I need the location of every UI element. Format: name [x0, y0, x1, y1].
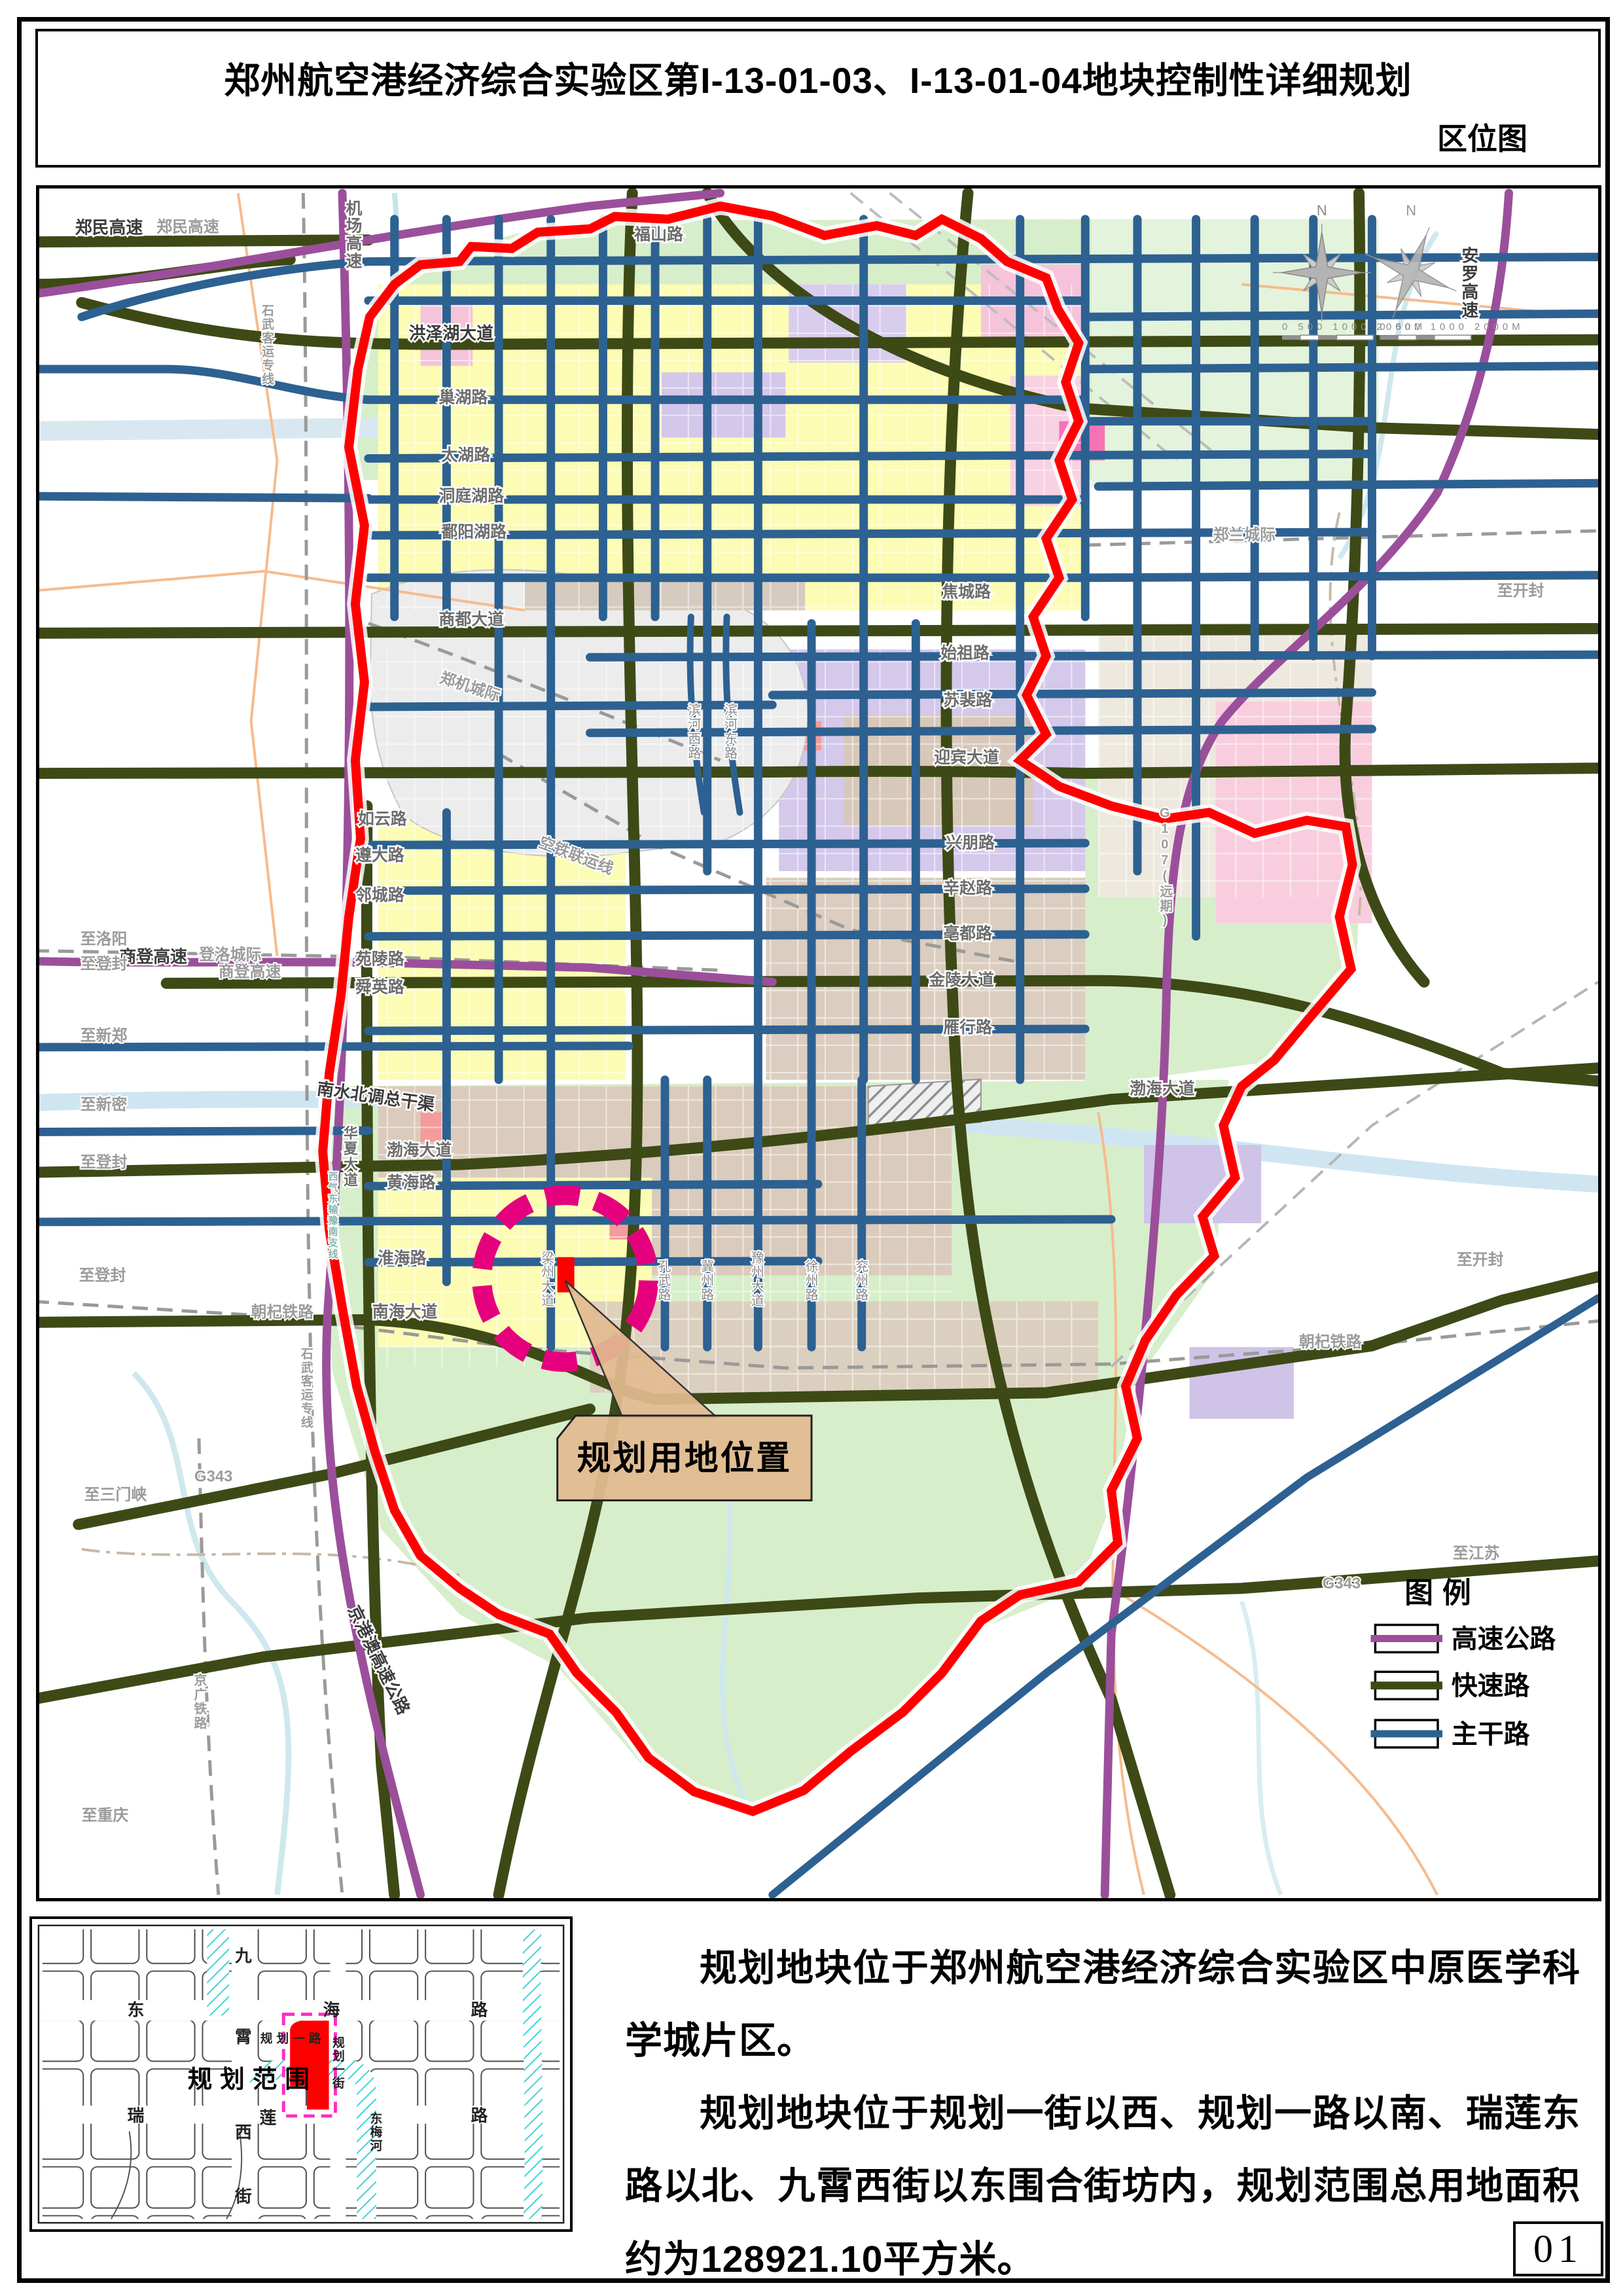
road-label: 华夏大道 [342, 1125, 359, 1188]
road-label: 孔武路 [656, 1259, 671, 1302]
direction-label: 至重庆 [82, 1806, 129, 1824]
road-label: 福山路 [633, 226, 684, 244]
road-label: 郑民高速 [156, 218, 219, 236]
street-char: 莲 [260, 2109, 277, 2128]
direction-label: 至洛阳 [80, 931, 128, 948]
street-char: 路 [471, 2106, 488, 2125]
plan-sheet: 郑州航空港经济综合实验区第I-13-01-03、I-13-01-04地块控制性详… [0, 0, 1623, 2296]
road-label: 黄海路 [387, 1173, 437, 1192]
road-label: 鄱阳湖路 [440, 523, 507, 541]
road-label: 金陵大道 [928, 970, 994, 989]
road-label: 豫州大道 [749, 1250, 764, 1308]
rail-label: 朝杞铁路 [251, 1302, 315, 1321]
road-label: G107(远期) [1158, 806, 1173, 929]
north-label: N [1406, 202, 1416, 219]
planning-scope-label: 规划范围 [188, 2066, 317, 2093]
sheet-subtitle: 区位图 [1437, 115, 1527, 158]
callout-label: 规划用地位置 [577, 1439, 793, 1477]
rail-label: 朝杞铁路 [1299, 1333, 1363, 1351]
street-char: 街 [234, 2187, 252, 2206]
road-label: 雁行路 [943, 1018, 993, 1037]
river-label: 东梅河 [368, 2111, 382, 2153]
road-label: 巢湖路 [438, 389, 488, 407]
description-text: 规划地块位于郑州航空港经济综合实验区中原医学科学城片区。 规划地块位于规划一街以… [625, 1932, 1580, 2246]
road-label: 迎宾大道 [934, 748, 999, 767]
legend-label: 主干路 [1452, 1720, 1530, 1749]
rail-label: 石武客运专线 [260, 304, 274, 386]
direction-label: 至新密 [80, 1096, 128, 1114]
road-label: 南海大道 [372, 1302, 438, 1321]
road-label: 兴朋路 [946, 834, 995, 852]
road-label: 亳都路 [943, 924, 993, 943]
rail-label: 郑兰城际 [1213, 526, 1275, 544]
location-map-svg: 规划用地位置 N N 0 500 1000 2000M 0 500 1000 2… [39, 188, 1598, 1898]
road-label: 滨河东路 [722, 703, 738, 761]
road-label: 渤海大道 [1130, 1079, 1195, 1098]
road-label: 商都大道 [438, 609, 504, 628]
road-label: 遵大路 [355, 846, 405, 865]
title-block: 郑州航空港经济综合实验区第I-13-01-03、I-13-01-04地块控制性详… [35, 29, 1601, 168]
road-label: 太湖路 [441, 446, 491, 464]
pipeline-label: 西气东输豫南支线 [327, 1171, 338, 1259]
road-label: 苏裴路 [943, 691, 993, 709]
direction-label: 至登封 [79, 1267, 126, 1285]
direction-label: 至江苏 [1453, 1545, 1500, 1562]
street-label: 规划一路 [260, 2031, 325, 2045]
description-para2: 规划地块位于规划一街以西、规划一路以南、瑞莲东路以北、九霄西街以东围合街坊内，规… [625, 2077, 1580, 2295]
street-label: 规划一街 [331, 2035, 345, 2090]
road-label: 安罗高速 [1459, 246, 1478, 319]
legend-label: 高速公路 [1452, 1624, 1556, 1653]
legend-label: 快速路 [1452, 1672, 1530, 1700]
page-number: 01 [1513, 2221, 1603, 2276]
street-char: 海 [323, 2001, 340, 2020]
road-label: 兖州路 [853, 1259, 868, 1302]
street-char: 霄 [235, 2028, 252, 2047]
rail-label: 石武客运专线 [299, 1347, 313, 1429]
page-number-value: 01 [1533, 2227, 1583, 2272]
street-char: 瑞 [128, 2106, 145, 2125]
road-label: 舜英路 [355, 977, 405, 996]
direction-label: 至新郑 [80, 1026, 128, 1045]
road-label: 郑民高速 [75, 218, 143, 238]
north-label: N [1317, 202, 1327, 219]
page-title: 郑州航空港经济综合实验区第I-13-01-03、I-13-01-04地块控制性详… [38, 51, 1598, 103]
road-label: 商登高速 [119, 946, 187, 966]
road-label: 淮海路 [378, 1249, 427, 1268]
inset-map-svg: 东 海 路 九 霄 西 街 瑞 莲 路 规划一路 规划一街 东梅河 规划范围 [32, 1919, 570, 2229]
direction-label: 至开封 [1497, 583, 1544, 600]
direction-label: 至登封 [80, 955, 128, 973]
scale-bar-ticks: 0 500 1000 2000M [1380, 321, 1524, 332]
legend-item-highway: 高速公路 [1370, 1624, 1556, 1653]
legend-title: 图例 [1404, 1577, 1480, 1609]
direction-label: 至登封 [80, 1153, 128, 1171]
rail-label: 京广铁路 [192, 1672, 207, 1731]
street-char: 东 [128, 2000, 145, 2020]
road-label: 辛赵路 [943, 878, 993, 897]
direction-label: 至三门峡 [84, 1485, 147, 1503]
road-label: 徐州路 [803, 1259, 818, 1302]
road-label: 如云路 [358, 810, 408, 828]
street-char: 西 [235, 2123, 252, 2142]
road-label: 商登高速 [219, 962, 281, 980]
direction-label: 至开封 [1457, 1251, 1504, 1269]
road-label: 梁州大道 [539, 1250, 554, 1308]
road-label: 洞庭湖路 [438, 486, 505, 505]
description-para1: 规划地块位于郑州航空港经济综合实验区中原医学科学城片区。 [625, 1932, 1580, 2077]
road-label: 滨河西路 [686, 703, 701, 761]
street-char: 路 [471, 2000, 488, 2020]
road-label: G343 [1323, 1575, 1361, 1592]
road-label: 邻城路 [355, 886, 405, 905]
road-label: G343 [194, 1467, 232, 1485]
road-label: 苑陵路 [355, 950, 405, 968]
road-label: 渤海大道 [387, 1140, 452, 1159]
road-label: 始祖路 [940, 644, 990, 662]
inset-site-map: 东 海 路 九 霄 西 街 瑞 莲 路 规划一路 规划一街 东梅河 规划范围 [29, 1916, 573, 2232]
street-char: 九 [234, 1946, 252, 1965]
road-label: 机场高速 [344, 200, 362, 270]
road-label: 洪泽湖大道 [409, 323, 493, 343]
road-label: 焦城路 [942, 583, 991, 601]
road-label: 冀州路 [699, 1259, 714, 1302]
rail-label: 登洛城际 [198, 945, 262, 963]
location-map: 规划用地位置 N N 0 500 1000 2000M 0 500 1000 2… [36, 185, 1601, 1901]
